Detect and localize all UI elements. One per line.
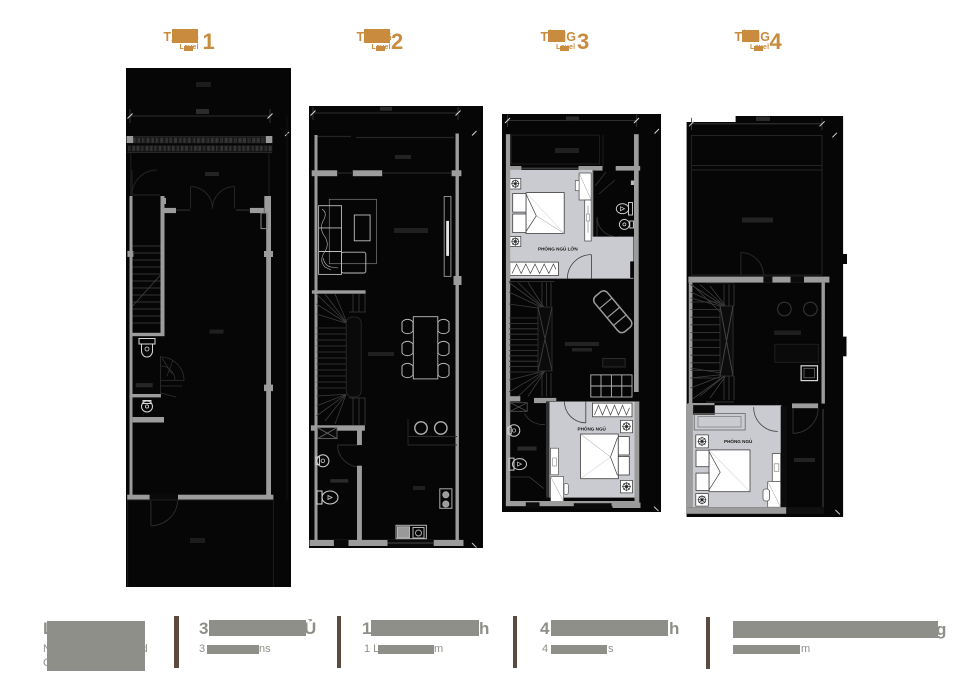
svg-text:PHÒNG NGỦ: PHÒNG NGỦ — [724, 437, 753, 444]
svg-text:PHÒNG NGỦ LỚN: PHÒNG NGỦ LỚN — [538, 245, 578, 252]
svg-text:PHÒNG NGỦ: PHÒNG NGỦ — [578, 425, 607, 432]
